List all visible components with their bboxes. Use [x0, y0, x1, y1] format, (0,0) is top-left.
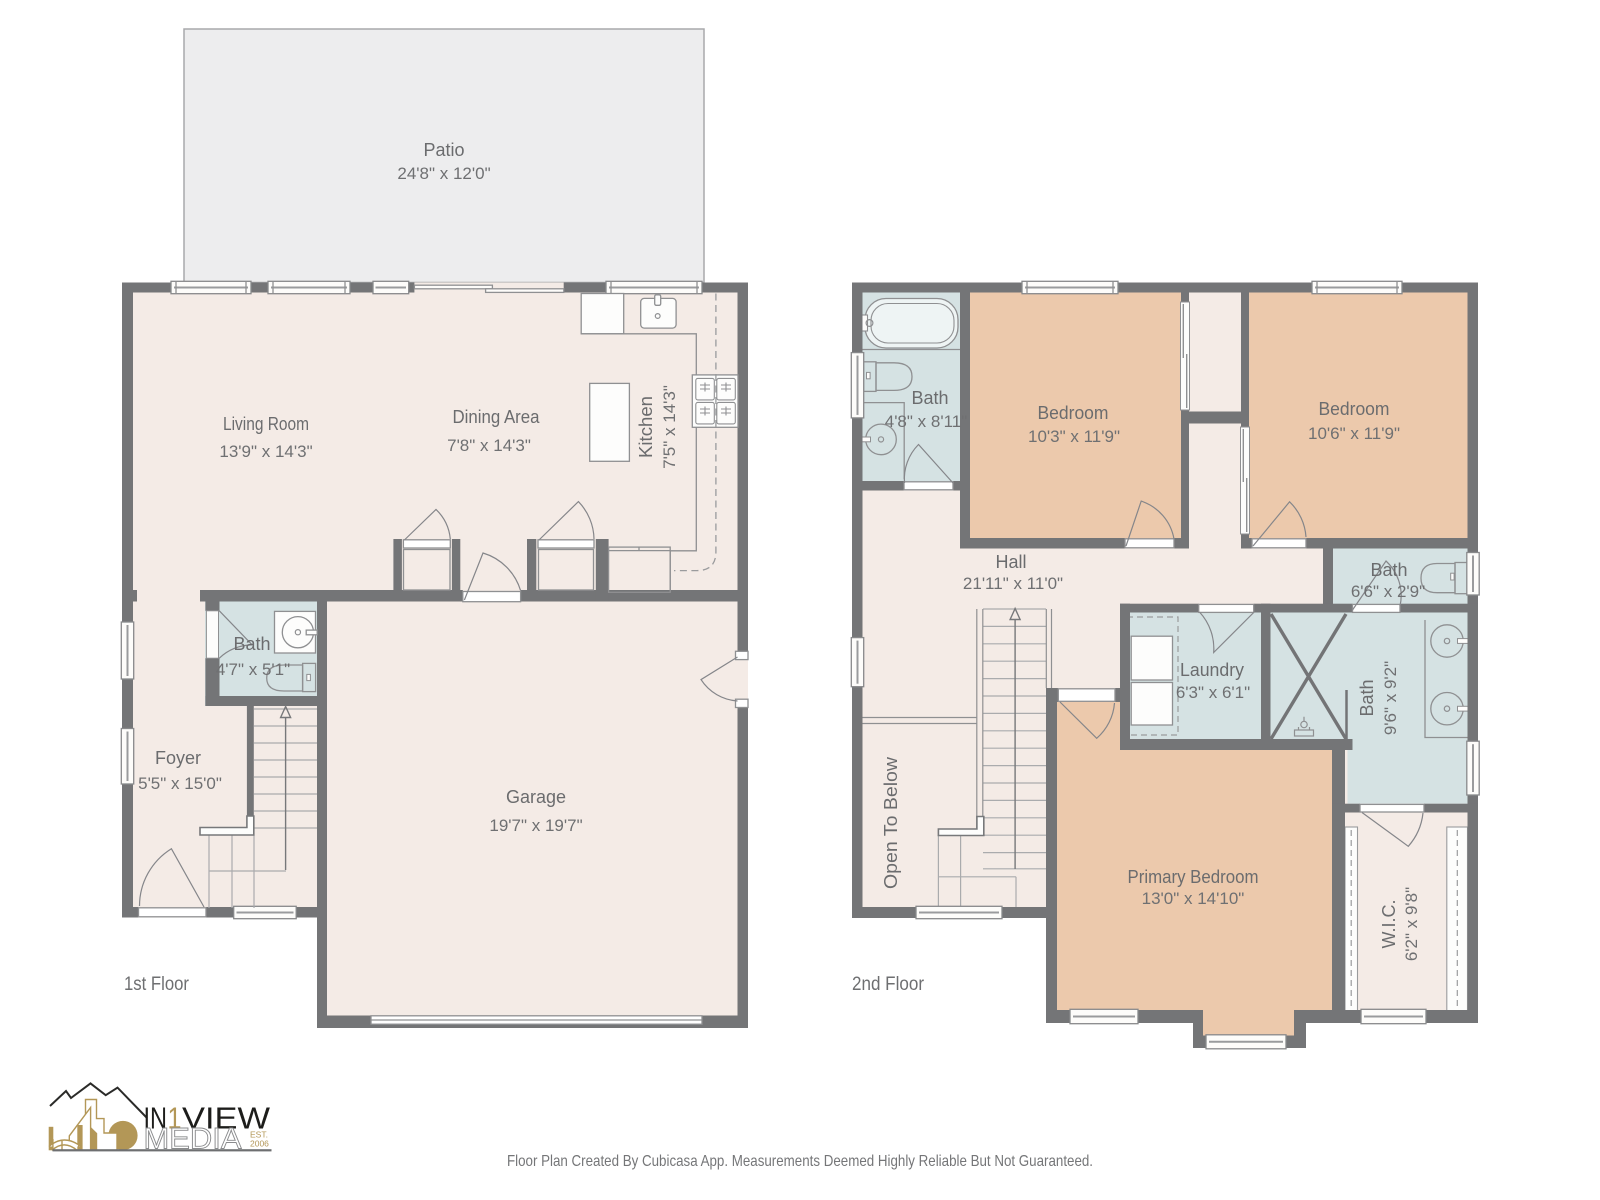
svg-text:Primary Bedroom: Primary Bedroom: [1128, 867, 1259, 887]
svg-text:Laundry: Laundry: [1180, 660, 1244, 680]
svg-text:Dining Area: Dining Area: [453, 407, 541, 427]
svg-text:Floor Plan Created By Cubicasa: Floor Plan Created By Cubicasa App. Meas…: [507, 1153, 1093, 1170]
svg-text:10'6" x 11'9": 10'6" x 11'9": [1308, 424, 1400, 443]
svg-text:Hall: Hall: [995, 552, 1026, 572]
svg-text:Bath: Bath: [1357, 679, 1377, 716]
svg-text:4'8" x 8'11": 4'8" x 8'11": [885, 412, 968, 431]
svg-text:13'0" x 14'10": 13'0" x 14'10": [1142, 889, 1245, 908]
svg-text:2nd Floor: 2nd Floor: [852, 974, 925, 995]
svg-text:13'9" x 14'3": 13'9" x 14'3": [219, 442, 312, 461]
svg-text:21'11" x 11'0": 21'11" x 11'0": [963, 574, 1063, 593]
svg-text:5'5" x 15'0": 5'5" x 15'0": [138, 774, 222, 793]
svg-text:Foyer: Foyer: [155, 748, 201, 768]
svg-text:Kitchen: Kitchen: [636, 396, 656, 458]
svg-text:7'5" x 14'3": 7'5" x 14'3": [660, 385, 679, 469]
svg-text:6'6" x 2'9": 6'6" x 2'9": [1351, 582, 1425, 601]
svg-text:Patio: Patio: [423, 140, 464, 160]
svg-text:24'8" x 12'0": 24'8" x 12'0": [397, 164, 490, 183]
svg-text:Garage: Garage: [506, 787, 566, 807]
svg-text:4'7" x 5'1": 4'7" x 5'1": [216, 660, 290, 679]
svg-text:MEDIA: MEDIA: [144, 1123, 242, 1156]
svg-text:6'2" x 9'8": 6'2" x 9'8": [1402, 887, 1421, 961]
svg-text:Living Room: Living Room: [223, 414, 309, 434]
svg-text:Bedroom: Bedroom: [1319, 399, 1390, 419]
svg-text:Bath: Bath: [233, 634, 270, 654]
svg-text:2006: 2006: [250, 1139, 269, 1149]
svg-text:10'3" x 11'9": 10'3" x 11'9": [1028, 427, 1120, 446]
svg-text:Bath: Bath: [1370, 560, 1407, 580]
svg-text:7'8" x 14'3": 7'8" x 14'3": [447, 436, 531, 455]
svg-text:Open To Below: Open To Below: [881, 756, 901, 889]
svg-text:Bath: Bath: [911, 388, 948, 408]
svg-text:W.I.C.: W.I.C.: [1379, 900, 1399, 949]
svg-text:Bedroom: Bedroom: [1038, 403, 1109, 423]
svg-text:19'7" x 19'7": 19'7" x 19'7": [489, 816, 582, 835]
svg-text:1st Floor: 1st Floor: [124, 974, 190, 995]
svg-text:6'3" x 6'1": 6'3" x 6'1": [1176, 683, 1250, 702]
svg-text:9'6" x 9'2": 9'6" x 9'2": [1381, 661, 1400, 735]
